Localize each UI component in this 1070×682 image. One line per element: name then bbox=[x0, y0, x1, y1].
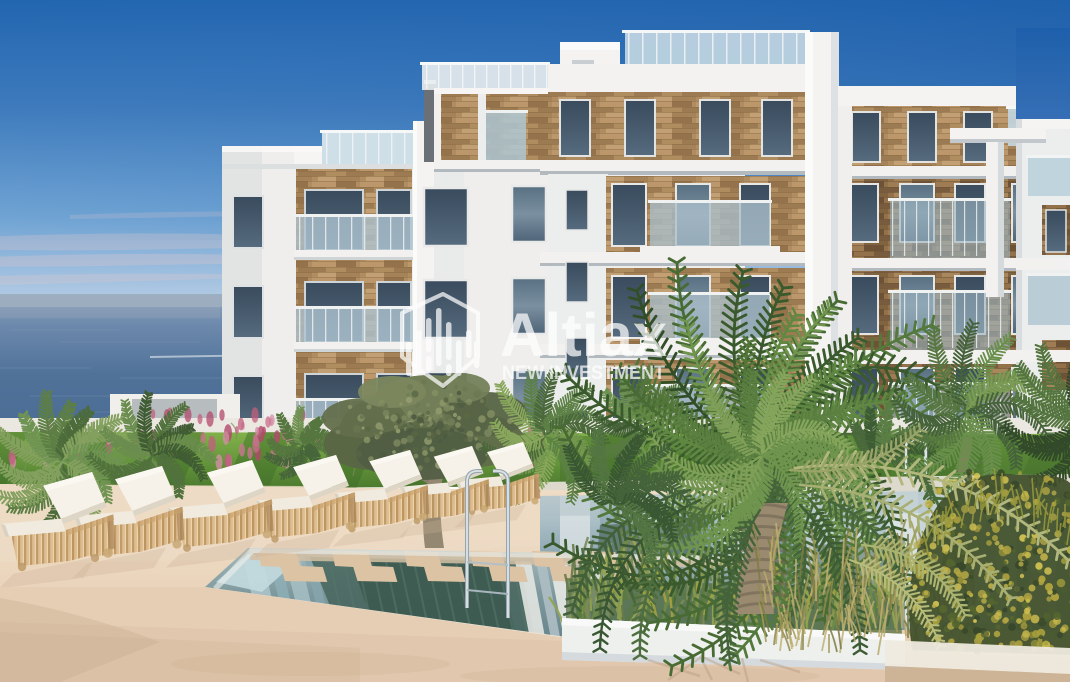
svg-text:Altiax: Altiax bbox=[500, 301, 667, 369]
svg-text:NEW INVESTMENT: NEW INVESTMENT bbox=[502, 363, 665, 384]
